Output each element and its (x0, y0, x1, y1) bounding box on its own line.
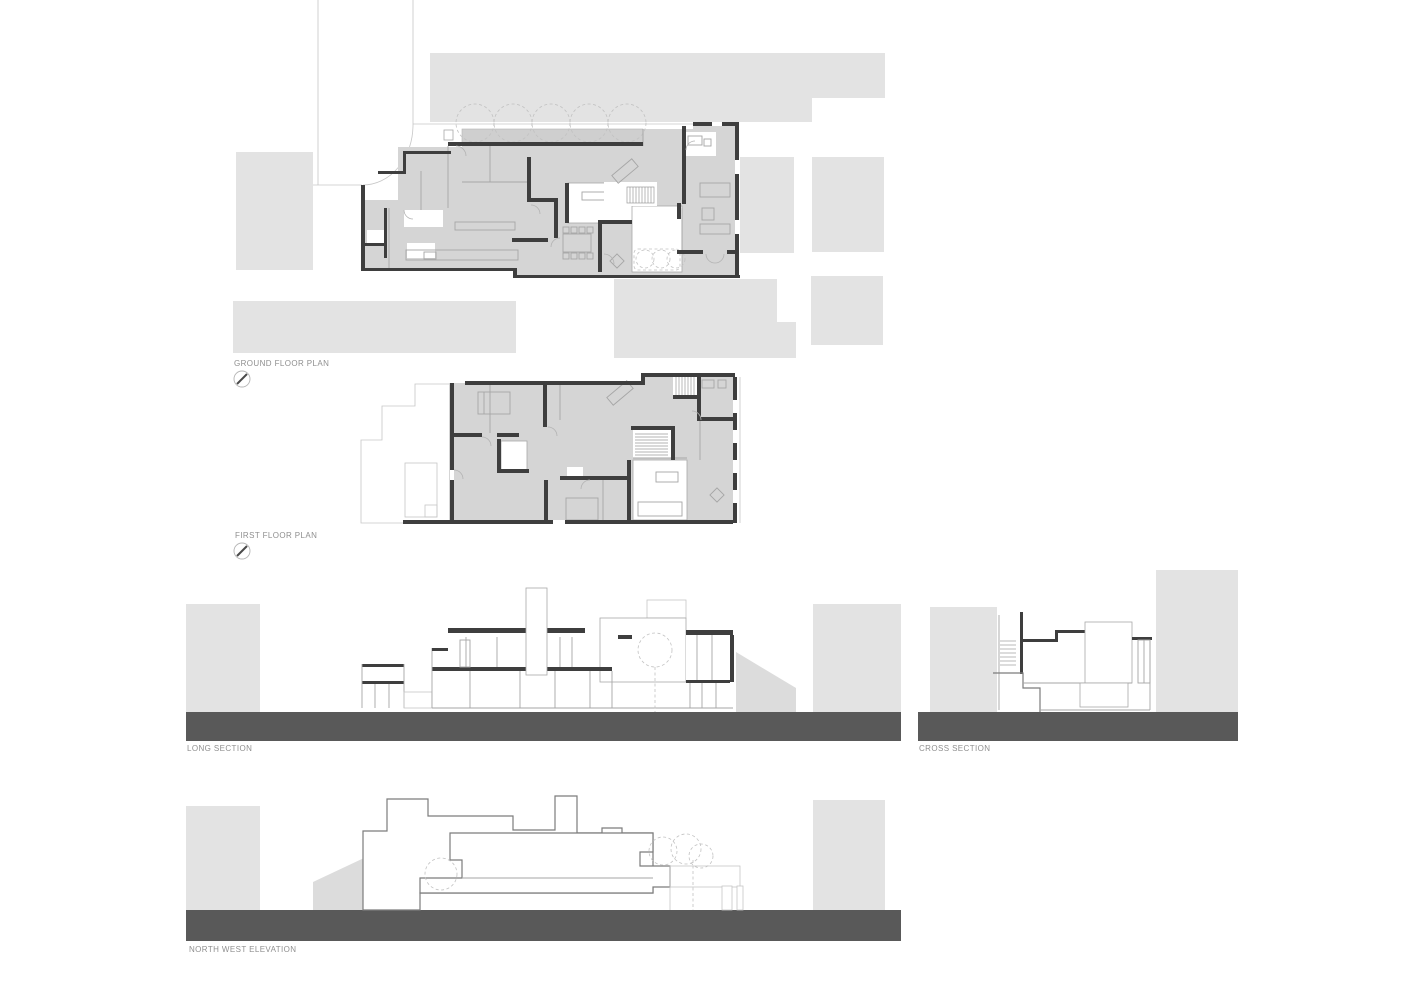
ground-band (186, 910, 901, 941)
wall (450, 433, 482, 437)
wall (543, 383, 547, 427)
long-section-drawing (186, 588, 901, 741)
wall (598, 222, 602, 272)
wall (465, 381, 641, 385)
wall (361, 268, 517, 271)
wall (361, 185, 365, 271)
drawing-sheet: GROUND FLOOR PLAN FIRST FLOOR PLAN LONG … (0, 0, 1414, 1000)
room-white (633, 460, 687, 520)
shadow-wedge (736, 652, 796, 712)
roof-slab (618, 635, 632, 639)
first-floor-plan-drawing (361, 373, 740, 524)
context-building (1156, 570, 1238, 712)
wall (641, 373, 735, 377)
door-gap (712, 122, 722, 126)
long-section-label: LONG SECTION (187, 744, 252, 753)
wall (735, 122, 739, 278)
drawings-canvas (0, 0, 1414, 1000)
parapet (432, 648, 448, 651)
north-arrow-icon (234, 371, 250, 387)
upper-room (1085, 622, 1132, 683)
context-building (233, 301, 516, 353)
window-gap (735, 220, 739, 234)
wall (631, 426, 675, 430)
wall (682, 126, 686, 204)
cross-section-label: CROSS SECTION (919, 744, 990, 753)
elevation-post (737, 886, 743, 910)
stair-tower (526, 588, 547, 675)
wall (554, 198, 558, 238)
roof-slab (1055, 630, 1085, 633)
wall (544, 480, 548, 523)
wall (403, 151, 451, 154)
context-building (236, 152, 313, 270)
wall (627, 460, 631, 523)
courtyard (632, 206, 682, 272)
first-floor-plan-label: FIRST FLOOR PLAN (235, 531, 317, 540)
wall (598, 220, 632, 224)
wall (1020, 612, 1023, 674)
context-building (811, 276, 883, 345)
elevation-right-wing (670, 866, 740, 887)
tree-dashed-circle (689, 844, 713, 868)
window-gap (733, 460, 737, 473)
wall (641, 373, 645, 385)
elevation-post (722, 886, 732, 910)
roof-slab (448, 628, 585, 633)
wall (565, 183, 569, 223)
room-white (407, 243, 435, 258)
window-gap (735, 160, 739, 174)
wall (497, 439, 501, 473)
room-white (567, 467, 583, 477)
section-right-wing (686, 630, 734, 708)
stair-top-right (673, 377, 697, 397)
wall (361, 243, 387, 246)
wall (450, 383, 454, 523)
door-gap (553, 520, 565, 524)
wall (497, 469, 529, 473)
neighbour-outline (425, 505, 437, 517)
section-outbuilding (362, 664, 432, 708)
wall (527, 157, 531, 202)
section-cross-body (993, 612, 1153, 712)
context-building (430, 98, 812, 122)
cross-section-drawing (918, 570, 1238, 741)
ground-band (918, 712, 1238, 741)
wall (384, 208, 387, 258)
roof-slab (1023, 639, 1058, 642)
wall (671, 426, 675, 460)
roof-slab (686, 630, 733, 635)
context-building (186, 806, 260, 910)
context-building (430, 53, 885, 98)
ground-band (186, 712, 901, 741)
lower-room (1080, 683, 1128, 707)
window-gap (733, 400, 737, 413)
wall (727, 250, 736, 254)
context-building (813, 604, 901, 712)
stair-first (633, 430, 671, 458)
wall (497, 433, 519, 437)
ground-floor-plan-label: GROUND FLOOR PLAN (234, 359, 329, 368)
roof-slab (1132, 637, 1152, 640)
hedge-strip (462, 129, 643, 143)
wall (560, 476, 630, 480)
entry-gate (444, 130, 453, 140)
ground-floor-plan-drawing (233, 0, 885, 358)
tree-dashed-circle (671, 834, 701, 864)
wall (448, 142, 643, 146)
context-building (614, 279, 796, 358)
window-gap (733, 490, 737, 503)
shadow-wedge (313, 858, 364, 910)
room-white (367, 230, 384, 243)
neighbour-outline (405, 463, 437, 517)
elevation-outline (363, 796, 743, 910)
wall (527, 198, 558, 202)
door-gap (450, 470, 454, 480)
stair-void (501, 441, 527, 471)
wall (513, 275, 740, 278)
wall (697, 417, 735, 421)
wall (403, 151, 406, 174)
window-gap (733, 430, 737, 443)
context-building (930, 607, 997, 712)
context-building (813, 800, 885, 910)
context-building (740, 157, 794, 253)
stair-hall-white (604, 182, 657, 206)
wall (378, 171, 406, 174)
north-arrow-icon (234, 543, 250, 559)
north-west-elevation-label: NORTH WEST ELEVATION (189, 945, 296, 954)
context-building (186, 604, 260, 712)
context-building (812, 157, 884, 252)
wall (730, 635, 734, 682)
north-west-elevation-drawing (186, 796, 901, 941)
wall (673, 395, 699, 399)
wall (512, 238, 548, 242)
floor-slab (686, 680, 730, 683)
wall (677, 203, 681, 219)
floor-slab (432, 667, 612, 671)
wall (677, 250, 703, 254)
